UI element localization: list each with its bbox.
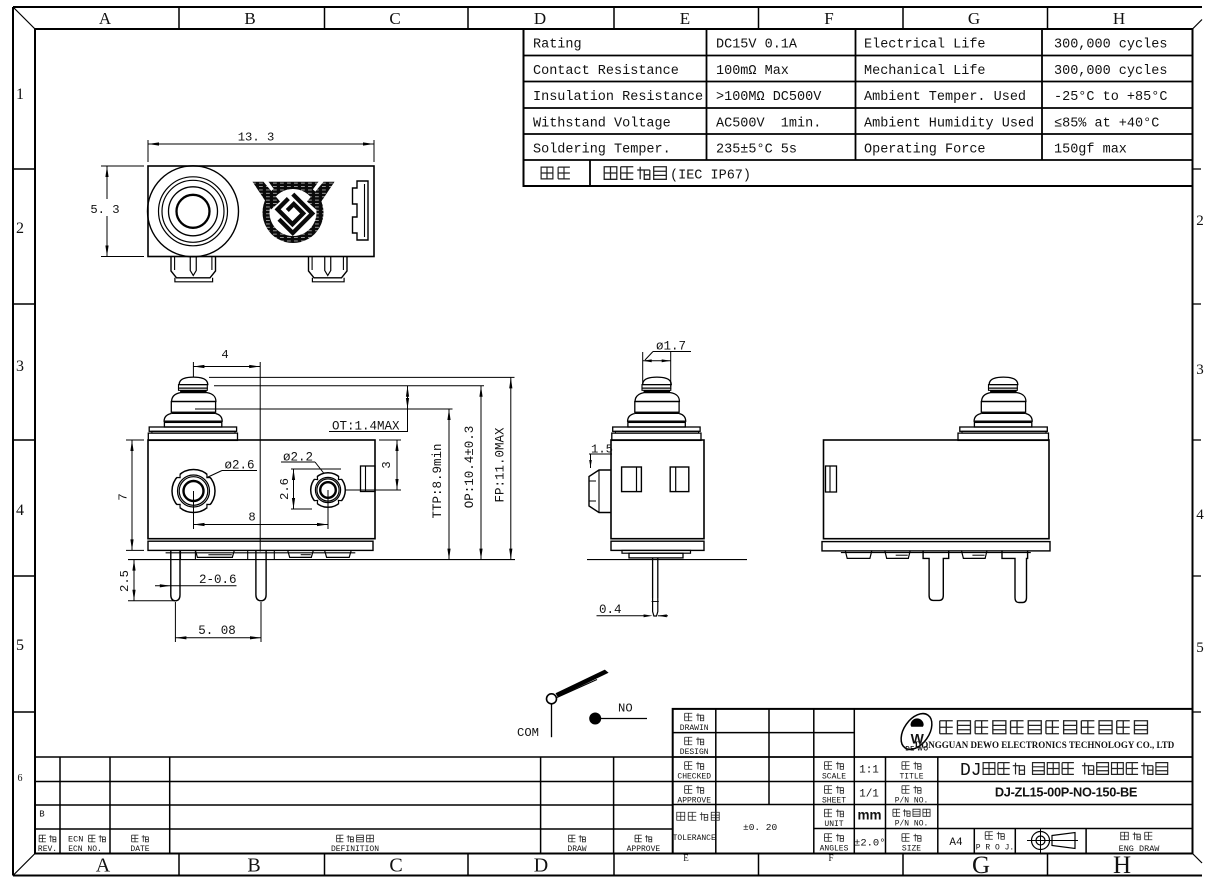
svg-text:Insulation Resistance: Insulation Resistance <box>533 90 703 105</box>
svg-text:mm: mm <box>858 808 882 823</box>
svg-text:DESIGN: DESIGN <box>680 748 709 757</box>
svg-text:DC15V 0.1A: DC15V 0.1A <box>716 38 798 53</box>
svg-text:D: D <box>534 855 548 877</box>
svg-text:P R O J.: P R O J. <box>976 844 1014 853</box>
svg-text:300,000 cycles: 300,000 cycles <box>1054 38 1167 53</box>
svg-text:2: 2 <box>16 220 24 237</box>
svg-text:DEFINITION: DEFINITION <box>331 845 379 854</box>
svg-text:TOLERANCE: TOLERANCE <box>673 834 716 843</box>
svg-text:(IEC IP67): (IEC IP67) <box>670 169 751 184</box>
svg-text:ECN: ECN <box>68 835 83 845</box>
svg-text:2-0.6: 2-0.6 <box>199 573 237 587</box>
svg-text:150gf max: 150gf max <box>1054 143 1127 158</box>
svg-text:CHECKED: CHECKED <box>677 773 711 782</box>
svg-text:2.6: 2.6 <box>278 478 292 500</box>
svg-text:Electrical Life: Electrical Life <box>864 38 986 53</box>
svg-text:OP:10.4±0.3: OP:10.4±0.3 <box>463 426 477 509</box>
svg-text:3: 3 <box>1196 362 1204 378</box>
svg-text:AC500V 1min.: AC500V 1min. <box>716 117 821 132</box>
svg-text:2.5: 2.5 <box>118 570 132 592</box>
svg-text:B: B <box>247 855 260 877</box>
svg-text:DJ: DJ <box>960 761 982 781</box>
svg-text:1: 1 <box>16 86 24 103</box>
svg-text:NO: NO <box>618 702 633 716</box>
svg-text:5. 3: 5. 3 <box>90 203 119 217</box>
svg-text:Contact Resistance: Contact Resistance <box>533 64 679 79</box>
svg-text:8: 8 <box>248 511 255 525</box>
svg-text:DATE: DATE <box>130 845 149 854</box>
svg-text:H: H <box>1113 852 1131 879</box>
svg-text:C: C <box>389 855 402 877</box>
svg-text:FP:11.0MAX: FP:11.0MAX <box>494 427 508 503</box>
svg-text:2: 2 <box>1196 213 1204 229</box>
svg-text:3: 3 <box>16 358 24 375</box>
svg-text:APPROVE: APPROVE <box>677 797 711 806</box>
svg-text:4: 4 <box>16 502 24 519</box>
svg-text:±2.0°: ±2.0° <box>854 838 886 850</box>
svg-text:DRAWIN: DRAWIN <box>680 724 709 733</box>
svg-text:G: G <box>968 9 980 28</box>
svg-text:1:1: 1:1 <box>859 765 879 777</box>
svg-text:P/N NO.: P/N NO. <box>895 797 929 806</box>
svg-text:REV.: REV. <box>38 845 57 854</box>
svg-text:4: 4 <box>1196 507 1204 523</box>
svg-text:5. 08: 5. 08 <box>198 624 236 638</box>
svg-text:300,000 cycles: 300,000 cycles <box>1054 64 1167 79</box>
svg-text:A: A <box>99 9 112 28</box>
svg-text:-25°C to +85°C: -25°C to +85°C <box>1054 90 1167 105</box>
svg-text:7: 7 <box>117 493 131 500</box>
svg-text:ANGLES: ANGLES <box>820 845 849 854</box>
svg-text:Ambient Temper. Used: Ambient Temper. Used <box>864 90 1026 105</box>
svg-text:Operating Force: Operating Force <box>864 143 986 158</box>
svg-text:ENG DRAW: ENG DRAW <box>1119 844 1161 854</box>
svg-text:H: H <box>1113 9 1125 28</box>
svg-text:13. 3: 13. 3 <box>238 131 275 145</box>
svg-text:5: 5 <box>1196 640 1204 656</box>
svg-text:ECN NO.: ECN NO. <box>68 845 102 854</box>
svg-text:DJ-ZL15-00P-NO-150-BE: DJ-ZL15-00P-NO-150-BE <box>995 785 1138 800</box>
svg-text:Rating: Rating <box>533 38 582 53</box>
svg-text:COM: COM <box>517 726 539 740</box>
svg-text:D: D <box>534 9 546 28</box>
svg-text:TTP:8.9min: TTP:8.9min <box>431 443 445 518</box>
svg-text:Mechanical Life: Mechanical Life <box>864 64 986 79</box>
svg-text:DRAW: DRAW <box>567 845 586 854</box>
svg-text:E: E <box>680 9 690 28</box>
svg-text:235±5°C 5s: 235±5°C 5s <box>716 143 797 158</box>
svg-text:UNIT: UNIT <box>824 820 843 829</box>
svg-text:F: F <box>824 9 833 28</box>
svg-text:1/1: 1/1 <box>859 789 879 801</box>
svg-text:DONGGUAN DEWO ELECTRONICS TECH: DONGGUAN DEWO ELECTRONICS TECHNOLOGY CO.… <box>915 740 1175 750</box>
svg-text:100mΩ Max: 100mΩ Max <box>716 64 789 79</box>
svg-text:SCALE: SCALE <box>822 773 846 782</box>
svg-text:3: 3 <box>380 461 394 468</box>
svg-text:B: B <box>244 9 255 28</box>
svg-text:6: 6 <box>18 773 23 784</box>
svg-text:A4: A4 <box>949 837 963 849</box>
svg-text:Ambient Humidity Used: Ambient Humidity Used <box>864 117 1034 132</box>
svg-text:P/N NO.: P/N NO. <box>895 820 929 829</box>
svg-text:±0. 20: ±0. 20 <box>743 822 778 833</box>
svg-text:≤85% at +40°C: ≤85% at +40°C <box>1054 117 1159 132</box>
svg-text:Soldering Temper.: Soldering Temper. <box>533 143 671 158</box>
svg-text:APPROVE: APPROVE <box>627 845 661 854</box>
svg-text:4: 4 <box>221 348 228 362</box>
svg-text:Withstand Voltage: Withstand Voltage <box>533 117 671 132</box>
svg-text:0.4: 0.4 <box>599 603 622 617</box>
svg-text:G: G <box>972 852 990 879</box>
svg-text:5: 5 <box>16 637 24 654</box>
svg-text:A: A <box>96 855 111 877</box>
svg-text:B: B <box>39 810 45 820</box>
svg-text:TITLE: TITLE <box>899 773 923 782</box>
svg-text:SIZE: SIZE <box>902 845 921 854</box>
svg-text:>100MΩ DC500V: >100MΩ DC500V <box>716 90 822 105</box>
svg-text:C: C <box>389 9 400 28</box>
svg-text:SHEET: SHEET <box>822 797 846 806</box>
